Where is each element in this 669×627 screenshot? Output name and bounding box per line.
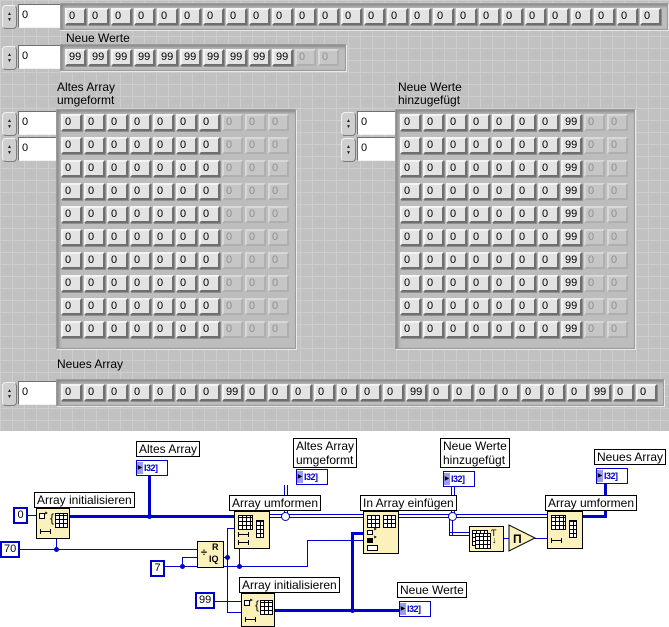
array-element: 0: [222, 137, 243, 154]
array-element[interactable]: 0: [176, 321, 197, 338]
array-element[interactable]: 0: [446, 137, 467, 154]
insert-into-array-node[interactable]: ‣ ‣: [363, 511, 399, 554]
array-element[interactable]: 0: [84, 114, 105, 131]
array-element[interactable]: 99: [561, 114, 582, 131]
array-index-control: ▲ ▼ 0: [2, 381, 61, 405]
array-element[interactable]: 0: [469, 206, 490, 223]
array-element[interactable]: 0: [84, 206, 105, 223]
terminal-neue-hinzugefuegt[interactable]: ▶ I32]: [443, 471, 475, 487]
array-element[interactable]: 0: [272, 8, 293, 25]
array-element[interactable]: 0: [492, 321, 513, 338]
array-element[interactable]: 0: [456, 8, 477, 25]
array-element[interactable]: 0: [84, 252, 105, 269]
array-element[interactable]: 0: [548, 8, 569, 25]
array-element[interactable]: 0: [423, 275, 444, 292]
array-element[interactable]: 99: [65, 49, 86, 66]
array-element[interactable]: 0: [199, 252, 220, 269]
array-grid-row: 0000000000: [61, 252, 291, 269]
array-element[interactable]: 0: [538, 275, 559, 292]
array-element[interactable]: 0: [61, 183, 82, 200]
array-element[interactable]: 0: [295, 8, 316, 25]
array-element[interactable]: 0: [469, 137, 490, 154]
array-grid-icon: [55, 513, 68, 528]
array-element[interactable]: 0: [640, 8, 661, 25]
array-element[interactable]: 0: [130, 206, 151, 223]
array-element[interactable]: 0: [268, 384, 289, 401]
wire-quotient-riser-up[interactable]: [227, 528, 228, 558]
array-element[interactable]: 0: [521, 384, 542, 401]
dimension-ruler-icon: [238, 532, 249, 537]
array-element[interactable]: 0: [515, 183, 536, 200]
array-element[interactable]: 0: [515, 275, 536, 292]
array-element[interactable]: 99: [561, 321, 582, 338]
constant-seventy[interactable]: 70: [0, 541, 20, 558]
array-element[interactable]: 0: [538, 321, 559, 338]
array-element[interactable]: 0: [176, 229, 197, 246]
array-element[interactable]: 0: [423, 252, 444, 269]
array-element[interactable]: 0: [446, 298, 467, 315]
indicator-label-altes-array[interactable]: Altes Array: [136, 441, 200, 457]
array-element[interactable]: 0: [502, 8, 523, 25]
array-element[interactable]: 0: [176, 114, 197, 131]
array-element[interactable]: 0: [176, 275, 197, 292]
array-element[interactable]: 0: [130, 137, 151, 154]
array-element[interactable]: 0: [176, 206, 197, 223]
array-element: 0: [245, 183, 266, 200]
array-element[interactable]: 0: [515, 298, 536, 315]
array-element[interactable]: 0: [446, 275, 467, 292]
array-element[interactable]: 0: [423, 183, 444, 200]
wire-seventy-to-riq[interactable]: [18, 549, 198, 550]
initialize-array-node[interactable]: ‣ {: [241, 593, 275, 627]
array-element[interactable]: 0: [594, 8, 615, 25]
array-grid-row: 00000009900: [400, 252, 630, 269]
array-grid-icon: [383, 515, 396, 528]
indicator-label-neues-array[interactable]: Neues Array: [594, 449, 666, 465]
array-element[interactable]: 99: [226, 49, 247, 66]
array-element[interactable]: 0: [337, 384, 358, 401]
wire-array2d-einfuegen-to-umformen2[interactable]: [397, 514, 548, 518]
array-grid-row: 00000009900: [400, 229, 630, 246]
array-element[interactable]: 0: [515, 137, 536, 154]
array-element: 0: [245, 298, 266, 315]
array-element[interactable]: 0: [314, 384, 335, 401]
array-element[interactable]: 0: [469, 252, 490, 269]
array-element: 0: [222, 275, 243, 292]
array-element[interactable]: 0: [107, 252, 128, 269]
node-label-einfuegen[interactable]: In Array einfügen: [360, 495, 457, 511]
terminal-altes-umgeformt[interactable]: ▶ I32]: [296, 469, 328, 485]
array-grid-neue-hinzugefuegt: 0000000990000000009900000000099000000000…: [400, 114, 630, 338]
array-element[interactable]: 99: [561, 275, 582, 292]
array-element[interactable]: 0: [130, 229, 151, 246]
array-element[interactable]: 0: [446, 160, 467, 177]
array-element[interactable]: 0: [613, 384, 634, 401]
array-element[interactable]: 0: [469, 229, 490, 246]
array-element[interactable]: 0: [245, 384, 266, 401]
array-element[interactable]: 0: [199, 298, 220, 315]
array-element[interactable]: 0: [636, 384, 657, 401]
wire-seven-to-riq-y[interactable]: [182, 557, 198, 558]
decrement-arrow[interactable]: ▼: [7, 124, 12, 130]
array-element[interactable]: 0: [291, 384, 312, 401]
array-element[interactable]: 0: [446, 321, 467, 338]
array-element[interactable]: 99: [203, 49, 224, 66]
array-element[interactable]: 0: [400, 229, 421, 246]
array-element[interactable]: 0: [492, 298, 513, 315]
decrement-arrow[interactable]: ▼: [7, 150, 12, 156]
array-element[interactable]: 0: [400, 160, 421, 177]
array-grid-row: 0000000000: [61, 206, 291, 223]
array-element[interactable]: 0: [203, 8, 224, 25]
array-element[interactable]: 0: [446, 229, 467, 246]
array-element[interactable]: 0: [469, 114, 490, 131]
array-element[interactable]: 0: [65, 8, 86, 25]
array-element[interactable]: 0: [479, 8, 500, 25]
reshape-array-node[interactable]: [547, 511, 583, 549]
array-grid-row: 00000009900: [400, 206, 630, 223]
node-label-init1[interactable]: Array initialisieren: [34, 492, 135, 508]
array-element[interactable]: 0: [525, 8, 546, 25]
array-element[interactable]: 0: [515, 229, 536, 246]
array-element: 0: [268, 275, 289, 292]
array-element[interactable]: 0: [538, 206, 559, 223]
array-element[interactable]: 0: [61, 114, 82, 131]
array-element[interactable]: 0: [199, 160, 220, 177]
array-size-node[interactable]: Ƭ ↓: [469, 526, 504, 552]
quotient-remainder-node[interactable]: ÷ R IQ: [197, 541, 224, 568]
wire-seven-to-einfuegen-index[interactable]: [307, 540, 364, 541]
wire-array1d-to-altes-array-terminal[interactable]: [148, 476, 151, 516]
array-element[interactable]: 0: [400, 137, 421, 154]
array-element[interactable]: 0: [153, 137, 174, 154]
array-element[interactable]: 0: [199, 114, 220, 131]
indicator-label-altes-umgeformt[interactable]: Altes Array umgeformt: [293, 438, 357, 468]
array-element[interactable]: 99: [249, 49, 270, 66]
index-field[interactable]: 0: [18, 4, 61, 28]
array-element[interactable]: 0: [199, 229, 220, 246]
array-element[interactable]: 0: [176, 137, 197, 154]
array-element[interactable]: 0: [492, 275, 513, 292]
array-element[interactable]: 0: [423, 298, 444, 315]
array-element[interactable]: 0: [249, 8, 270, 25]
terminal-altes-array[interactable]: ▶ I32]: [136, 460, 168, 476]
array-element[interactable]: 0: [153, 298, 174, 315]
array-element[interactable]: 0: [341, 8, 362, 25]
array-element[interactable]: 0: [153, 229, 174, 246]
array-element[interactable]: 0: [318, 8, 339, 25]
index-spinner[interactable]: ▲ ▼: [2, 112, 17, 136]
array-element[interactable]: 0: [130, 183, 151, 200]
array-element[interactable]: 0: [130, 252, 151, 269]
initialize-array-node[interactable]: ‣ {: [36, 508, 70, 539]
array-element: 0: [268, 206, 289, 223]
array-element[interactable]: 99: [272, 49, 293, 66]
array-element[interactable]: 0: [469, 160, 490, 177]
wire-ninetynine-to-init2[interactable]: [213, 601, 242, 602]
array-element[interactable]: 0: [199, 206, 220, 223]
array-element[interactable]: 0: [515, 321, 536, 338]
constant-ninetynine[interactable]: 99: [195, 592, 215, 609]
index-spinner[interactable]: ▲ ▼: [341, 138, 356, 162]
array-element[interactable]: 0: [538, 114, 559, 131]
array-element[interactable]: 0: [492, 183, 513, 200]
array-element[interactable]: 0: [571, 8, 592, 25]
array-element[interactable]: 0: [567, 384, 588, 401]
wire-array1d-init2-to-neue-werte[interactable]: [273, 609, 400, 612]
quotient-output-label: IQ: [209, 554, 219, 564]
array-element[interactable]: 0: [360, 384, 381, 401]
array-element[interactable]: 0: [180, 8, 201, 25]
array-element[interactable]: 0: [538, 183, 559, 200]
array-element[interactable]: 0: [515, 160, 536, 177]
array-element[interactable]: 0: [410, 8, 431, 25]
array-element[interactable]: 0: [84, 384, 105, 401]
array-element[interactable]: 0: [88, 8, 109, 25]
index-spinner[interactable]: ▲ ▼: [2, 382, 17, 406]
array-element[interactable]: 0: [153, 183, 174, 200]
constant-zero[interactable]: 0: [13, 507, 28, 524]
array-element[interactable]: 0: [492, 160, 513, 177]
array-element[interactable]: 0: [400, 321, 421, 338]
wire-quotient-riser-down[interactable]: [227, 557, 228, 613]
array-index-control: ▲ ▼ 0: [2, 137, 61, 161]
node-label-umformen2[interactable]: Array umformen: [545, 495, 637, 511]
array-element[interactable]: 0: [84, 160, 105, 177]
array-element[interactable]: 0: [199, 384, 220, 401]
array-element[interactable]: 0: [475, 384, 496, 401]
array-element[interactable]: 0: [61, 160, 82, 177]
array-element[interactable]: 0: [469, 298, 490, 315]
array-element[interactable]: 0: [498, 384, 519, 401]
array-element[interactable]: 99: [561, 206, 582, 223]
index-spinner[interactable]: ▲ ▼: [2, 138, 17, 162]
array-element[interactable]: 0: [84, 275, 105, 292]
decrement-arrow[interactable]: ▼: [7, 58, 12, 64]
terminal-neue-werte[interactable]: ▶ I32]: [399, 601, 431, 617]
array-element[interactable]: 0: [130, 298, 151, 315]
wire-seven-riser-einfuegen[interactable]: [307, 540, 308, 567]
array-element[interactable]: 0: [107, 298, 128, 315]
index-field[interactable]: 0: [18, 111, 61, 135]
array-element[interactable]: 0: [423, 229, 444, 246]
array-label-neues-array: Neues Array: [57, 358, 123, 371]
array-element[interactable]: 0: [176, 160, 197, 177]
array-element[interactable]: 99: [111, 49, 132, 66]
decrement-arrow[interactable]: ▼: [7, 17, 12, 23]
array-element[interactable]: 0: [492, 137, 513, 154]
terminal-neues-array[interactable]: ▶ I32]: [596, 468, 628, 484]
array-element[interactable]: 0: [544, 384, 565, 401]
array-element[interactable]: 0: [84, 183, 105, 200]
array-element[interactable]: 0: [176, 183, 197, 200]
array-element[interactable]: 0: [383, 384, 404, 401]
array-element[interactable]: 0: [446, 252, 467, 269]
array-element[interactable]: 0: [429, 384, 450, 401]
array-element[interactable]: 99: [590, 384, 611, 401]
array-grid-icon: [260, 600, 273, 615]
array-element[interactable]: 0: [61, 298, 82, 315]
array-element[interactable]: 0: [538, 160, 559, 177]
array-element[interactable]: 0: [199, 275, 220, 292]
array-element[interactable]: 0: [400, 252, 421, 269]
array-element[interactable]: 0: [153, 206, 174, 223]
array-element[interactable]: 99: [561, 137, 582, 154]
array-element[interactable]: 0: [107, 160, 128, 177]
decrement-arrow[interactable]: ▼: [346, 150, 351, 156]
array-element[interactable]: 0: [400, 275, 421, 292]
array-element[interactable]: 99: [134, 49, 155, 66]
array-element[interactable]: 0: [176, 298, 197, 315]
array-element[interactable]: 99: [157, 49, 178, 66]
array-element: 0: [584, 137, 605, 154]
array-element[interactable]: 0: [199, 183, 220, 200]
array-element[interactable]: 0: [199, 321, 220, 338]
array-element[interactable]: 0: [446, 206, 467, 223]
array-element[interactable]: 99: [180, 49, 201, 66]
array-element[interactable]: 99: [88, 49, 109, 66]
wire-array2d-to-array-size[interactable]: [449, 532, 470, 536]
array-element[interactable]: 0: [61, 252, 82, 269]
array-element[interactable]: 0: [84, 298, 105, 315]
array-element[interactable]: 99: [406, 384, 427, 401]
array-element[interactable]: 99: [561, 252, 582, 269]
index-spinner[interactable]: ▲ ▼: [2, 5, 17, 29]
array-element[interactable]: 0: [61, 384, 82, 401]
array-element[interactable]: 0: [84, 321, 105, 338]
array-element[interactable]: 0: [538, 229, 559, 246]
index-field[interactable]: 0: [18, 381, 61, 405]
array-element[interactable]: 0: [107, 183, 128, 200]
array-element[interactable]: 0: [107, 137, 128, 154]
array-element[interactable]: 0: [61, 229, 82, 246]
array-element[interactable]: 0: [130, 160, 151, 177]
array-element[interactable]: 0: [61, 206, 82, 223]
index-spinner[interactable]: ▲ ▼: [341, 112, 356, 136]
array-element[interactable]: 0: [153, 321, 174, 338]
array-element[interactable]: 0: [515, 206, 536, 223]
array-element[interactable]: 0: [538, 298, 559, 315]
array-element[interactable]: 0: [153, 252, 174, 269]
array-element[interactable]: 0: [433, 8, 454, 25]
array-element[interactable]: 0: [400, 298, 421, 315]
array-element[interactable]: 0: [617, 8, 638, 25]
array-element[interactable]: 0: [423, 137, 444, 154]
array-element[interactable]: 0: [176, 384, 197, 401]
array-element[interactable]: 0: [387, 8, 408, 25]
array-element[interactable]: 0: [446, 114, 467, 131]
reshape-array-node[interactable]: [234, 511, 270, 549]
node-label-umformen1[interactable]: Array umformen: [229, 495, 321, 511]
array-element[interactable]: 0: [153, 160, 174, 177]
array-element[interactable]: 0: [538, 137, 559, 154]
array-element[interactable]: 0: [61, 321, 82, 338]
array-element[interactable]: 0: [400, 183, 421, 200]
array-element[interactable]: 0: [492, 229, 513, 246]
array-element[interactable]: 0: [107, 114, 128, 131]
array-element[interactable]: 0: [130, 321, 151, 338]
array-element[interactable]: 0: [423, 114, 444, 131]
array-element[interactable]: 0: [153, 114, 174, 131]
array-element[interactable]: 0: [492, 114, 513, 131]
array-element[interactable]: 99: [561, 229, 582, 246]
constant-seven[interactable]: 7: [150, 560, 165, 577]
node-label-init2[interactable]: Array initialisieren: [239, 577, 340, 593]
array-element[interactable]: 0: [130, 384, 151, 401]
index-field[interactable]: 0: [18, 137, 61, 161]
array-element[interactable]: 0: [61, 275, 82, 292]
array-element[interactable]: 0: [130, 275, 151, 292]
array-element[interactable]: 0: [452, 384, 473, 401]
junction-circle: [281, 512, 290, 521]
array-element[interactable]: 0: [107, 206, 128, 223]
indicator-label-neue-hinzugefuegt[interactable]: Neue Werte hinzugefügt: [440, 438, 510, 468]
array-element[interactable]: 0: [423, 160, 444, 177]
array-element[interactable]: 0: [469, 321, 490, 338]
array-element: 0: [268, 252, 289, 269]
index-field[interactable]: 0: [357, 137, 400, 161]
array-element[interactable]: 99: [222, 384, 243, 401]
array-element[interactable]: 0: [364, 8, 385, 25]
array-element[interactable]: 0: [107, 321, 128, 338]
array-element[interactable]: 0: [515, 114, 536, 131]
array-element[interactable]: 0: [153, 384, 174, 401]
array-element[interactable]: 99: [561, 183, 582, 200]
index-field[interactable]: 0: [18, 45, 61, 69]
array-element[interactable]: 0: [61, 137, 82, 154]
array-element: 0: [607, 114, 628, 131]
wire-array1d-riser-einfuegen[interactable]: [351, 532, 354, 610]
array-element[interactable]: 0: [84, 229, 105, 246]
array-element[interactable]: 0: [446, 183, 467, 200]
multiply-array-elements-node[interactable]: Π: [508, 524, 538, 552]
array-element[interactable]: 0: [538, 252, 559, 269]
array-element[interactable]: 0: [107, 384, 128, 401]
array-element[interactable]: 99: [561, 160, 582, 177]
array-element[interactable]: 0: [157, 8, 178, 25]
array-element[interactable]: 0: [423, 321, 444, 338]
array-element[interactable]: 0: [153, 275, 174, 292]
index-field[interactable]: 0: [357, 111, 400, 135]
array-element[interactable]: 0: [199, 137, 220, 154]
array-element[interactable]: 0: [492, 252, 513, 269]
array-element[interactable]: 0: [111, 8, 132, 25]
array-element[interactable]: 0: [400, 114, 421, 131]
array-element: 0: [295, 49, 316, 66]
array-element[interactable]: 0: [469, 183, 490, 200]
indicator-label-neue-werte[interactable]: Neue Werte: [397, 582, 467, 598]
array-element[interactable]: 0: [400, 206, 421, 223]
array-element[interactable]: 0: [134, 8, 155, 25]
array-element[interactable]: 0: [130, 114, 151, 131]
array-element[interactable]: 0: [492, 206, 513, 223]
array-element[interactable]: 0: [84, 137, 105, 154]
array-element[interactable]: 0: [176, 252, 197, 269]
array-grid-row: 0000000000: [61, 275, 291, 292]
index-spinner[interactable]: ▲ ▼: [2, 46, 17, 70]
array-element[interactable]: 0: [107, 275, 128, 292]
array-element[interactable]: 0: [107, 229, 128, 246]
array-element[interactable]: 0: [226, 8, 247, 25]
wire-quotient-to-init2-size[interactable]: [227, 612, 242, 613]
decrement-arrow[interactable]: ▼: [7, 394, 12, 400]
array-element: 0: [268, 137, 289, 154]
array-element[interactable]: 0: [423, 206, 444, 223]
array-element[interactable]: 0: [469, 275, 490, 292]
array-element[interactable]: 0: [515, 252, 536, 269]
array-element[interactable]: 99: [561, 298, 582, 315]
decrement-arrow[interactable]: ▼: [346, 124, 351, 130]
